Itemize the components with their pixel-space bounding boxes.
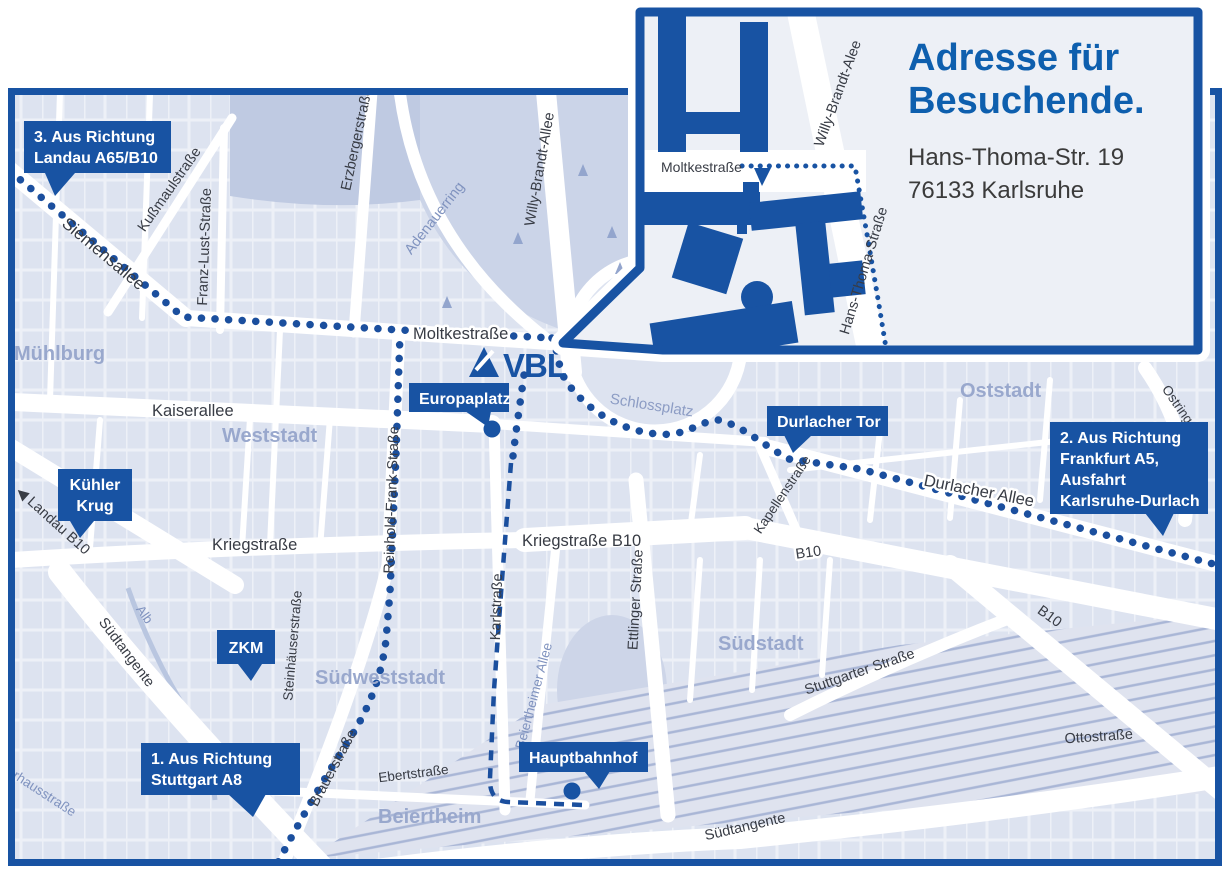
district-label-muehlburg: Mühlburg [14, 343, 105, 365]
inset-title-line1: Adresse für [908, 37, 1119, 79]
inset-address-line2: 76133 Karlsruhe [908, 177, 1084, 204]
map-canvas: Mühlburg Weststadt Oststadt Südstadt Süd… [0, 0, 1230, 874]
callout-landau-line1: 3. Aus Richtung [34, 129, 155, 146]
callout-frankfurt-line3: Ausfahrt [1060, 472, 1126, 489]
callout-durlacher-tor-line1: Durlacher Tor [777, 414, 881, 431]
street-label-kriegstrasse: Kriegstraße [212, 536, 297, 554]
district-label-beiertheim: Beiertheim [378, 806, 481, 828]
street-label-kaiserallee: Kaiserallee [152, 402, 234, 420]
inset-label-moltkestrasse: Moltkestraße [661, 159, 742, 175]
callout-kuehler-krug-line1: Kühler [70, 477, 121, 494]
callout-zkm-line1: ZKM [229, 640, 264, 657]
callout-europaplatz-line1: Europaplatz [419, 391, 511, 408]
forest-area [230, 95, 420, 205]
inset-title-line2: Besuchende. [908, 80, 1145, 122]
callout-hauptbahnhof-line1: Hauptbahnhof [529, 750, 638, 767]
callout-stuttgart-line2: Stuttgart A8 [151, 772, 242, 789]
street-franz-lust-strasse [220, 128, 224, 330]
callout-kuehler-krug-line2: Krug [76, 498, 113, 515]
district-label-oststadt: Oststadt [960, 380, 1041, 402]
building-block [638, 192, 760, 225]
callout-frankfurt-line2: Frankfurt A5, [1060, 451, 1159, 468]
callout-landau-line2: Landau A65/B10 [34, 150, 158, 167]
building-block [737, 225, 747, 234]
hauptbahnhof-stop-dot [564, 783, 581, 800]
building-block [658, 8, 686, 152]
callout-frankfurt-line1: 2. Aus Richtung [1060, 430, 1181, 447]
building-block [740, 22, 768, 152]
vbl-directions-map: Mühlburg Weststadt Oststadt Südstadt Süd… [0, 0, 1230, 874]
district-label-suedweststadt: Südweststadt [315, 667, 445, 689]
street-label-karlstrasse: Karlstraße [488, 573, 506, 640]
callout-frankfurt-line4: Karlsruhe-Durlach [1060, 493, 1200, 510]
building-entrance-block [743, 182, 759, 194]
district-label-weststadt: Weststadt [222, 425, 318, 447]
district-label-suedstadt: Südstadt [718, 633, 804, 655]
street-label-moltkestrasse: Moltkestraße [413, 325, 508, 343]
street-label-kriegstrasse-b10: Kriegstraße B10 [522, 532, 641, 550]
building-block [684, 112, 742, 134]
inset-panel: Moltkestraße Willy-Brandt-Alee Hans-Thom… [563, 4, 1198, 365]
callout-stuttgart-line1: 1. Aus Richtung [151, 751, 272, 768]
inset-address-line1: Hans-Thoma-Str. 19 [908, 144, 1124, 171]
